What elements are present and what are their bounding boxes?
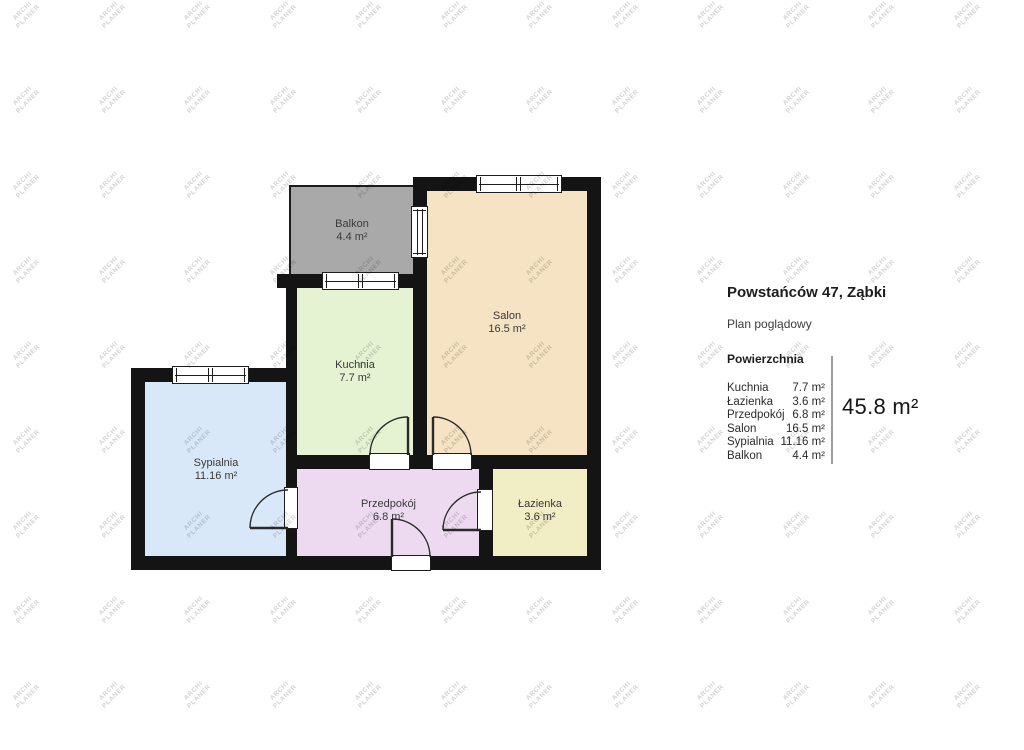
area-row-salon: Salon 16.5 m² bbox=[727, 423, 825, 437]
room-salon: Salon 16.5 m² bbox=[424, 188, 590, 458]
room-balkon: Balkon 4.4 m² bbox=[289, 185, 413, 275]
wall-sypialnia-left bbox=[131, 368, 145, 570]
room-area: 7.7 m² bbox=[335, 372, 375, 385]
area-row-balkon: Balkon 4.4 m² bbox=[727, 450, 825, 464]
area-row-value: 11.16 m² bbox=[780, 436, 825, 450]
wall-bottom bbox=[131, 556, 601, 570]
area-row-value: 3.6 m² bbox=[792, 396, 825, 410]
room-name: Łazienka bbox=[518, 498, 562, 511]
area-row-label: Kuchnia bbox=[727, 382, 769, 396]
area-row-label: Łazienka bbox=[727, 396, 773, 410]
room-label-lazienka: Łazienka 3.6 m² bbox=[518, 498, 562, 524]
room-lazienka: Łazienka 3.6 m² bbox=[490, 462, 590, 559]
wall-salon-right bbox=[587, 177, 601, 570]
area-row-value: 4.4 m² bbox=[792, 450, 825, 464]
room-kuchnia: Kuchnia 7.7 m² bbox=[294, 286, 416, 458]
area-row-przedpokoj: Przedpokój 6.8 m² bbox=[727, 409, 825, 423]
room-label-sypialnia: Sypialnia 11.16 m² bbox=[194, 457, 239, 483]
door-opening-entrance bbox=[391, 555, 431, 571]
room-area: 11.16 m² bbox=[194, 470, 239, 483]
plan-subtitle: Plan poglądowy bbox=[727, 317, 812, 331]
door-opening-kuchnia bbox=[369, 453, 410, 470]
room-name: Sypialnia bbox=[194, 457, 239, 470]
window-kuchnia bbox=[322, 272, 399, 290]
room-name: Balkon bbox=[335, 218, 369, 231]
window-sypialnia bbox=[172, 366, 249, 384]
window-salon bbox=[476, 175, 562, 193]
room-label-balkon: Balkon 4.4 m² bbox=[335, 218, 369, 244]
area-table: Kuchnia 7.7 m² Łazienka 3.6 m² Przedpokó… bbox=[727, 382, 825, 463]
room-label-kuchnia: Kuchnia 7.7 m² bbox=[335, 359, 375, 385]
area-row-value: 7.7 m² bbox=[792, 382, 825, 396]
room-sypialnia: Sypialnia 11.16 m² bbox=[142, 380, 290, 559]
plan-title: Powstańców 47, Ząbki bbox=[727, 284, 886, 301]
floor-plan: Salon 16.5 m² Kuchnia 7.7 m² Sypialnia 1… bbox=[0, 0, 1024, 750]
area-row-value: 16.5 m² bbox=[786, 423, 825, 437]
room-name: Kuchnia bbox=[335, 359, 375, 372]
room-label-przedpokoj: Przedpokój 6.8 m² bbox=[361, 498, 416, 524]
area-row-label: Przedpokój bbox=[727, 409, 785, 423]
total-divider bbox=[831, 356, 833, 464]
total-area: 45.8 m² bbox=[842, 394, 919, 420]
area-row-value: 6.8 m² bbox=[792, 409, 825, 423]
room-name: Salon bbox=[488, 310, 525, 323]
room-name: Przedpokój bbox=[361, 498, 416, 511]
area-row-label: Sypialnia bbox=[727, 436, 774, 450]
page: { "watermark": { "line1": "ARCHI", "line… bbox=[0, 0, 1024, 750]
room-przedpokoj: Przedpokój 6.8 m² bbox=[294, 462, 483, 559]
room-area: 3.6 m² bbox=[518, 511, 562, 524]
room-area: 16.5 m² bbox=[488, 323, 525, 336]
room-area: 6.8 m² bbox=[361, 511, 416, 524]
room-area: 4.4 m² bbox=[335, 231, 369, 244]
area-row-lazienka: Łazienka 3.6 m² bbox=[727, 396, 825, 410]
area-row-kuchnia: Kuchnia 7.7 m² bbox=[727, 382, 825, 396]
area-row-sypialnia: Sypialnia 11.16 m² bbox=[727, 436, 825, 450]
door-opening-salon bbox=[432, 453, 472, 470]
area-list-header: Powierzchnia bbox=[727, 352, 804, 366]
area-row-label: Balkon bbox=[727, 450, 762, 464]
window-balkon-door bbox=[411, 206, 428, 258]
door-opening-sypialnia bbox=[284, 487, 298, 529]
room-label-salon: Salon 16.5 m² bbox=[488, 310, 525, 336]
door-opening-lazienka bbox=[477, 489, 493, 531]
area-row-label: Salon bbox=[727, 423, 756, 437]
